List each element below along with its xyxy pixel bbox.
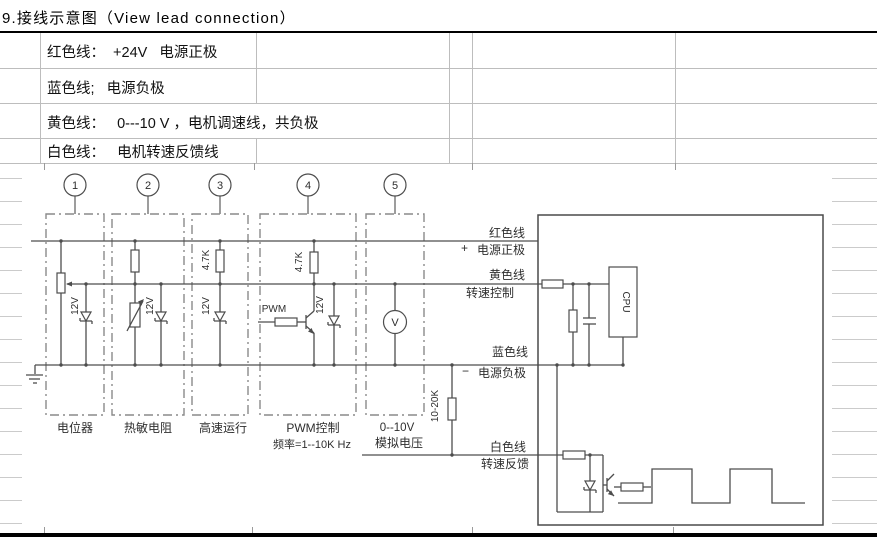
pull-resistor-label: 10-20K [430,390,441,423]
zener-voltage-label: 12V [201,297,212,315]
terminal-2-number: 2 [145,180,151,192]
zener-voltage-label: 12V [145,297,156,315]
ground-icon [26,365,43,383]
plus-sign: + [461,241,468,255]
caption-thermistor: 热敏电阻 [124,420,172,435]
resistor-icon [448,398,456,420]
caption-highspeed: 高速运行 [199,420,247,435]
resistor-icon [563,451,585,459]
potentiometer-circuit: 12V [57,241,92,365]
cpu-label: CPU [620,291,631,312]
yellow-wire-desc: 转速控制 [466,285,514,300]
caption-pwm-frequency: 频率=1--10K Hz [273,437,351,451]
pull-resistor-circuit: 10-20K [430,365,456,455]
terminal-5-number: 5 [392,180,398,192]
resistor-icon [216,250,224,272]
wire-labels: 红色线 + 电源正极 黄色线 转速控制 蓝色线 − 电源负极 白色线 转速反馈 [461,225,529,471]
zener-diode-icon [81,312,91,321]
resistor-icon [310,252,318,273]
controller-speed-input: CPU [542,267,637,365]
zener-voltage-label: 12V [315,296,326,314]
page: 9.接线示意图（View lead connection） 红色线： +24V … [0,0,877,539]
caption-analog-voltage: 模拟电压 [375,436,423,450]
thermistor-circuit: 12V [127,241,167,365]
zener-diode-icon [156,312,166,321]
terminal-3-number: 3 [217,180,223,192]
wiring-schematic: 1 2 3 4 5 [0,0,877,539]
voltmeter-label: V [391,317,399,329]
zener-diode-icon [585,481,595,490]
blue-wire-desc: 电源负极 [478,366,526,380]
white-wire-desc: 转速反馈 [481,456,529,471]
blue-wire-name: 蓝色线 [492,345,528,359]
caption-pwm: PWM控制 [286,421,339,435]
caption-analog-range: 0--10V [380,422,415,434]
resistor-icon [542,280,563,288]
pwm-circuit: 4.7K PWM 12V [258,241,340,365]
minus-sign: − [462,364,469,378]
zener-diode-icon [329,316,339,325]
zener-voltage-label: 12V [70,297,81,315]
pwm-input-label: PWM [262,304,286,315]
terminal-4-number: 4 [305,180,311,192]
potentiometer-icon [57,273,65,293]
highspeed-circuit: 4.7K 12V [201,241,226,365]
resistor-icon [275,318,297,326]
terminal-1-number: 1 [72,180,78,192]
resistor-value-label: 4.7K [294,251,305,272]
terminal-circles: 1 2 3 4 5 [64,174,406,214]
resistor-value-label: 4.7K [201,249,212,270]
resistor-icon [569,310,577,332]
controller-feedback-circuit [557,365,805,512]
controller-box [538,215,823,525]
red-wire-desc: 电源正极 [477,243,525,257]
zener-diode-icon [215,312,225,321]
caption-potentiometer: 电位器 [57,420,93,435]
wiper-arrow-icon [66,282,72,287]
resistor-icon [131,250,139,272]
yellow-wire-name: 黄色线 [489,268,525,282]
module-captions: 电位器 热敏电阻 高速运行 PWM控制 频率=1--10K Hz 0--10V … [57,420,423,451]
feedback-waveform [618,469,805,503]
white-wire-name: 白色线 [490,439,526,454]
red-wire-name: 红色线 [489,225,525,240]
resistor-icon [621,483,643,491]
analog-voltage-circuit: V [384,284,407,365]
